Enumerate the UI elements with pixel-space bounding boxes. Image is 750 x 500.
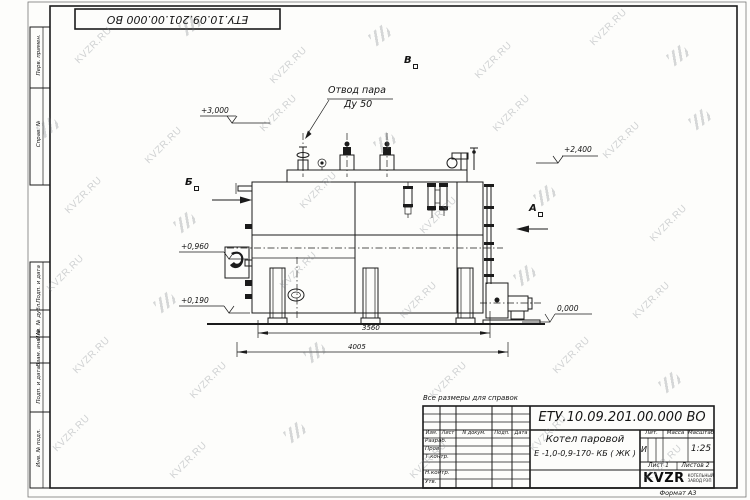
header-lit: Лит. xyxy=(640,430,663,438)
margin-box-sprav-n: Справ. № xyxy=(37,104,43,164)
title-block-doc-number: ЕТУ.10.09.201.00.000 ВО xyxy=(530,406,714,430)
sheets-total: Листов 2 xyxy=(677,462,714,470)
product-name-line1: Котел паровой xyxy=(530,433,640,448)
margin-box-podp-data-2: Подп. и дата xyxy=(37,355,43,415)
kvzr-logo: KVZR КОТЕЛЬНЫЙ ЗАВОД РЭП xyxy=(641,471,713,487)
sig-row-prov: Пров. xyxy=(425,447,441,453)
sig-header-list: Лист xyxy=(440,430,456,438)
sheet-number: Лист 1 xyxy=(640,462,677,470)
kvzr-logo-name: KVZR xyxy=(643,472,685,486)
steam-outlet-dn-label: Ду 50 xyxy=(344,100,372,110)
elevation-2400: +2,400 xyxy=(564,146,592,154)
sig-header-data: Дата xyxy=(512,430,530,438)
elevation-marks xyxy=(179,116,598,322)
sig-header-izm: Изм. xyxy=(423,430,440,438)
sig-row-nkontr: Н.контр. xyxy=(425,471,450,477)
water-level-gauges xyxy=(403,182,448,218)
format-note: Формат А3 xyxy=(640,489,716,498)
elevation-0000: 0,000 xyxy=(557,305,578,313)
product-name-line2: Е -1,0-0,9-170- КБ ( ЖК ) xyxy=(530,448,640,461)
view-v-label: В xyxy=(404,56,412,67)
kvzr-logo-tagline-line2: ЗАВОД РЭП xyxy=(688,478,712,483)
dimension-4005: 4005 xyxy=(348,344,366,351)
margin-box-perv-primen: Перв. примен. xyxy=(37,25,43,85)
sig-row-utv: Утв. xyxy=(425,480,437,486)
steam-outlet-label: Отвод пара xyxy=(328,86,386,96)
view-a-label: А xyxy=(529,204,537,215)
elevation-0960: +0,960 xyxy=(181,243,209,251)
scale-value: 1:25 xyxy=(688,438,714,462)
boiler-legs xyxy=(268,268,475,324)
top-stamp-doc-number: ЕТУ.10.09.201.00.000 ВО xyxy=(75,9,280,29)
boiler-body xyxy=(207,133,545,324)
sig-header-podp: Подп. xyxy=(492,430,512,438)
sig-row-razrab: Разраб. xyxy=(425,439,447,445)
elevation-0190: +0,190 xyxy=(181,297,209,305)
margin-box-inv-podl: Инв. № подл. xyxy=(37,418,43,478)
view-a-refbox xyxy=(538,212,543,217)
elevation-3000: +3,000 xyxy=(201,107,229,115)
sig-row-tkontr: Т.контр. xyxy=(425,455,449,461)
reference-note: Все размеры для справок xyxy=(423,395,518,402)
view-v-refbox xyxy=(413,64,418,69)
view-b-refbox xyxy=(194,186,199,191)
header-massa: Масса xyxy=(663,430,688,438)
drawing-sheet: ЕТУ.10.09.201.00.000 ВО Перв. примен. Сп… xyxy=(0,0,750,500)
front-hatch-and-fittings xyxy=(225,183,304,301)
header-masshtab: Масштаб xyxy=(688,430,714,438)
sig-header-ndokum: N докум. xyxy=(456,430,492,438)
kvzr-logo-tagline: КОТЕЛЬНЫЙ ЗАВОД РЭП xyxy=(688,474,714,484)
dimension-3560: 3560 xyxy=(362,325,380,332)
lit-value: И xyxy=(640,438,648,462)
view-b-label: Б xyxy=(185,178,193,189)
